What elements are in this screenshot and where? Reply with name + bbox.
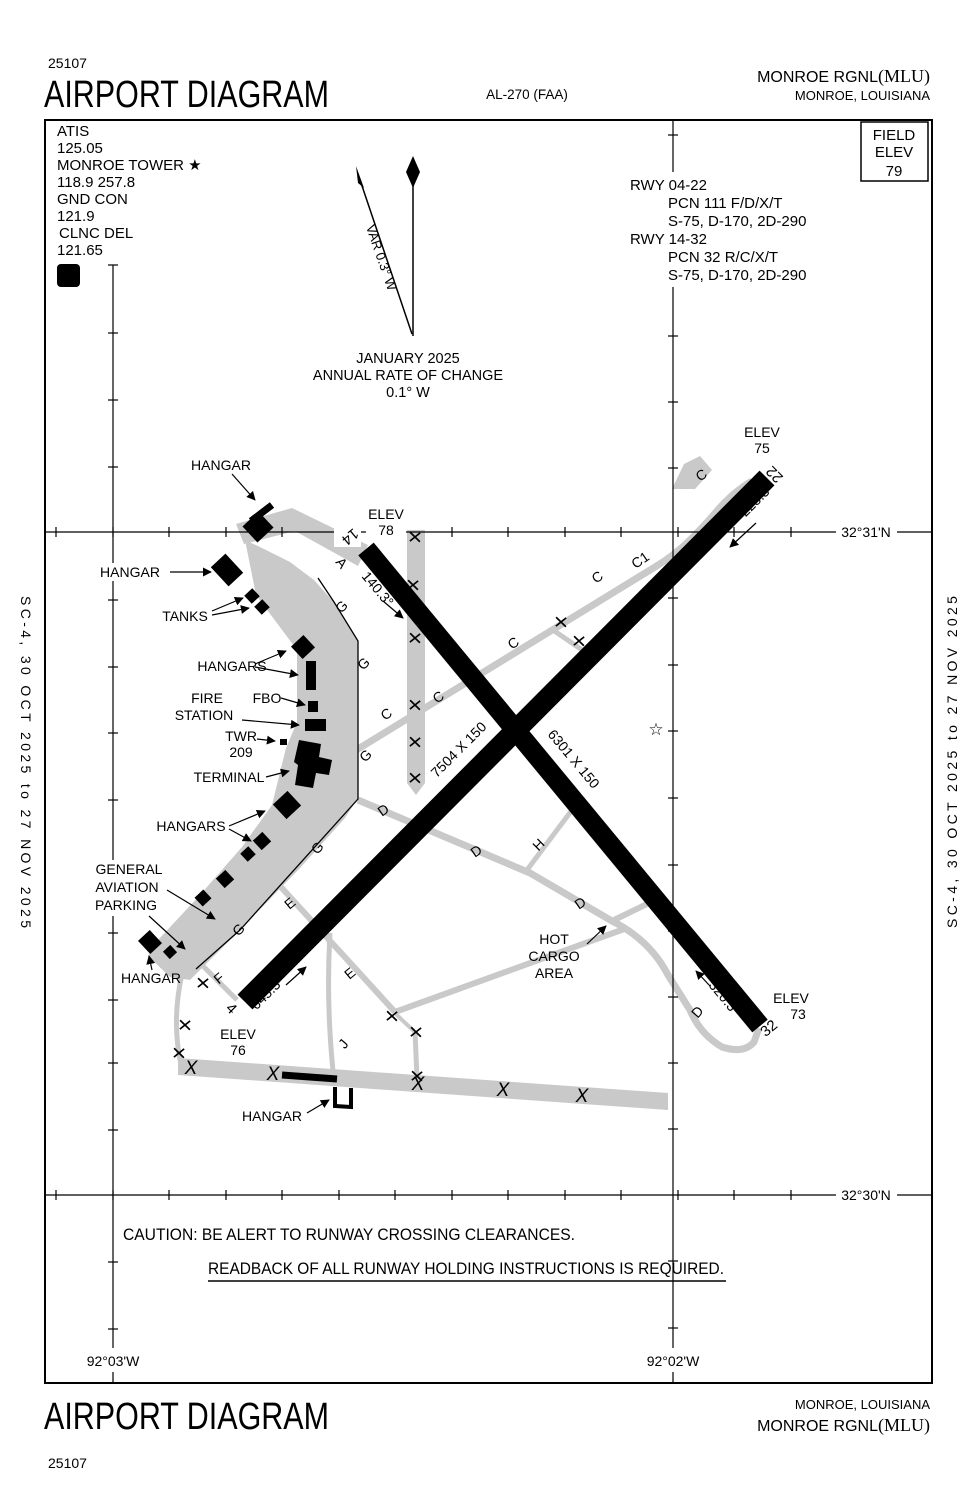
gnd-con-label: GND CON xyxy=(57,191,128,208)
arrow-twr xyxy=(257,739,275,741)
fbo-building xyxy=(308,701,318,712)
twy-h-label: H xyxy=(529,835,547,853)
twy-c-label-4: C xyxy=(588,567,605,586)
runway-info-block: RWY 04-22 PCN 111 F/D/X/T S-75, D-170, 2… xyxy=(630,177,806,284)
closed-f-stub xyxy=(176,974,182,1060)
closed-surface-x-marks: XXXXX xyxy=(173,531,590,1107)
arrow-fire-station xyxy=(242,720,299,725)
field-elev-box: FIELD ELEV 79 xyxy=(861,122,928,181)
magnetic-north-barb-icon xyxy=(356,166,364,188)
header-airport-icao: (MLU) xyxy=(878,66,930,87)
hangar-label-3: HANGAR xyxy=(121,970,181,986)
fbo-label: FBO xyxy=(253,690,282,706)
arrow-hangar-1 xyxy=(232,474,255,500)
field-elev-value: 79 xyxy=(886,163,903,180)
hot-cargo-label-1: HOT xyxy=(539,931,569,947)
ga-parking-label-1: GENERAL xyxy=(96,861,163,877)
field-elev-line1: FIELD xyxy=(873,127,916,144)
tanks-label: TANKS xyxy=(162,608,208,624)
comm-box: ATIS 125.05 MONROE TOWER ★ 118.9 257.8 G… xyxy=(57,123,202,287)
lon-label-right: 92°02'W xyxy=(647,1353,700,1369)
elev-73-label: ELEV xyxy=(773,990,809,1006)
atis-label: ATIS xyxy=(57,123,89,140)
lon-label-left: 92°03'W xyxy=(87,1353,140,1369)
caution-line-2: READBACK OF ALL RUNWAY HOLDING INSTRUCTI… xyxy=(208,1259,724,1278)
closed-taxiway-x-icon xyxy=(197,977,209,988)
footer-chart-number: 25107 xyxy=(48,1455,87,1471)
fire-station-label-2: STATION xyxy=(175,707,234,723)
arrow-tanks-1 xyxy=(212,598,243,611)
hangar-label-4: HANGAR xyxy=(242,1108,302,1124)
hangar-label-1: HANGAR xyxy=(191,457,251,473)
twr-elev-label: 209 xyxy=(229,744,253,760)
page-title: AIRPORT DIAGRAM xyxy=(44,74,329,116)
closed-connector xyxy=(415,1031,417,1078)
ifr-departure-symbol: D xyxy=(63,269,75,286)
hangars-label-1: HANGARS xyxy=(197,658,266,674)
tower-freq: 118.9 257.8 xyxy=(57,174,135,191)
arrow-hangar-4 xyxy=(307,1100,329,1113)
closed-runway-x-icon: X xyxy=(411,1074,426,1095)
hangar-building-2 xyxy=(211,554,243,587)
beacon-star-icon: ☆ xyxy=(648,720,663,739)
compass-rose: VAR 0.3° W JANUARY 2025 ANNUAL RATE OF C… xyxy=(313,156,503,401)
taxiway-e-diagonal xyxy=(395,928,627,1012)
header-airport-name-text: MONROE RGNL xyxy=(757,69,878,86)
elev-76-label: ELEV xyxy=(220,1026,256,1042)
closed-taxiway-strip xyxy=(407,530,425,795)
header-airport-name: MONROE RGNL(MLU) xyxy=(757,66,930,87)
elev-76-value: 76 xyxy=(230,1042,246,1058)
rwy-0422-strength: S-75, D-170, 2D-290 xyxy=(668,213,806,230)
footer-airport-name: MONROE RGNL(MLU) xyxy=(757,1415,930,1436)
elev-78-value: 78 xyxy=(378,522,394,538)
variation-label: VAR 0.3° W xyxy=(363,223,400,293)
header-procedure-id: AL-270 (FAA) xyxy=(486,87,568,102)
lat-label-bottom: 32°30'N xyxy=(841,1187,891,1203)
clnc-del-label: CLNC DEL xyxy=(59,225,133,242)
field-elev-line2: ELEV xyxy=(875,144,913,161)
hangars-label-2: HANGARS xyxy=(156,818,225,834)
rwy-0422-pcn: PCN 111 F/D/X/T xyxy=(668,195,782,212)
terminal-label: TERMINAL xyxy=(194,769,265,785)
elev-78-label: ELEV xyxy=(368,506,404,522)
twr-label: TWR xyxy=(225,728,257,744)
atis-freq: 125.05 xyxy=(57,140,103,157)
footer-airport-name-text: MONROE RGNL xyxy=(757,1418,878,1435)
hangars-building-2 xyxy=(306,661,316,690)
tower-label: MONROE TOWER ★ xyxy=(57,157,202,174)
hangar-bar-closed-runway xyxy=(282,1075,337,1079)
edge-note-left: SC-4, 30 OCT 2025 to 27 NOV 2025 xyxy=(18,596,34,928)
elev-73-value: 73 xyxy=(790,1006,806,1022)
rwy-num-4: 4 xyxy=(222,1000,240,1018)
taxiway-c-fillet xyxy=(672,456,712,489)
elev-75-label: ELEV xyxy=(744,424,780,440)
hot-cargo-label-2: CARGO xyxy=(528,948,579,964)
hangar-building-4-outline xyxy=(335,1087,351,1107)
edge-note-right: SC-4, 30 OCT 2025 to 27 NOV 2025 xyxy=(944,596,960,928)
closed-taxiway-x-icon xyxy=(179,1019,191,1030)
gnd-con-freq: 121.9 xyxy=(57,208,95,225)
closed-runway-x-icon: X xyxy=(184,1058,199,1079)
rwy-1432-label: RWY 14-32 xyxy=(630,231,707,248)
tower-building xyxy=(280,739,287,745)
footer-title: AIRPORT DIAGRAM xyxy=(44,1396,329,1438)
compass-rate-value: 0.1° W xyxy=(386,385,430,401)
compass-date: JANUARY 2025 xyxy=(356,351,459,367)
twy-c-label-1: C xyxy=(377,704,394,723)
hot-cargo-stub xyxy=(612,903,649,921)
fire-station-building xyxy=(305,719,326,731)
rwy-1432-strength: S-75, D-170, 2D-290 xyxy=(668,267,806,284)
header-chart-number: 25107 xyxy=(48,55,87,71)
twy-d-label-2: D xyxy=(467,841,484,860)
footer-city: MONROE, LOUISIANA xyxy=(795,1397,930,1412)
ga-parking-label-3: PARKING xyxy=(95,897,157,913)
hangar-label-2: HANGAR xyxy=(100,564,160,580)
airport-diagram-canvas: 25107 AIRPORT DIAGRAM AL-270 (FAA) MONRO… xyxy=(0,0,978,1500)
closed-runway-x-icon: X xyxy=(496,1080,511,1101)
footer: AIRPORT DIAGRAM 25107 MONROE, LOUISIANA … xyxy=(44,1396,930,1471)
compass-rate-label: ANNUAL RATE OF CHANGE xyxy=(313,368,503,384)
hot-cargo-label-3: AREA xyxy=(535,965,574,981)
rwy-1432-pcn: PCN 32 R/C/X/T xyxy=(668,249,778,266)
footer-airport-icao: (MLU) xyxy=(878,1415,930,1436)
rwy-0422-label: RWY 04-22 xyxy=(630,177,707,194)
ga-parking-label-2: AVIATION xyxy=(95,879,158,895)
header-city: MONROE, LOUISIANA xyxy=(795,88,930,103)
taxiway-j xyxy=(329,933,333,1071)
caution-note: CAUTION: BE ALERT TO RUNWAY CROSSING CLE… xyxy=(123,1225,726,1281)
header: 25107 AIRPORT DIAGRAM AL-270 (FAA) MONRO… xyxy=(44,55,930,116)
closed-runway-x-icon: X xyxy=(266,1064,281,1085)
lat-label-top: 32°31'N xyxy=(841,524,891,540)
airport-diagram-page: 25107 AIRPORT DIAGRAM AL-270 (FAA) MONRO… xyxy=(0,0,978,1500)
true-north-arrowhead-icon xyxy=(406,156,420,188)
elev-75-value: 75 xyxy=(754,440,770,456)
clnc-del-freq: 121.65 xyxy=(57,242,103,259)
caution-line-1: CAUTION: BE ALERT TO RUNWAY CROSSING CLE… xyxy=(123,1225,575,1244)
closed-runway-x-icon: X xyxy=(575,1086,590,1107)
twy-j-label: J xyxy=(335,1036,352,1052)
fire-station-label-1: FIRE xyxy=(191,690,223,706)
arrow-hangars-2b xyxy=(229,829,251,841)
taxiway-c xyxy=(345,481,752,757)
